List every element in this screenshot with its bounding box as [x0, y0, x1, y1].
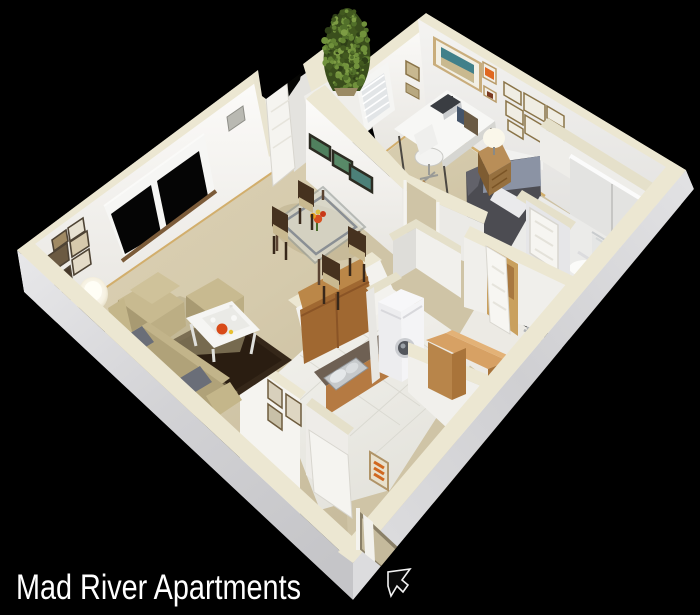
svg-text:Mad River Apartments: Mad River Apartments: [16, 568, 301, 607]
